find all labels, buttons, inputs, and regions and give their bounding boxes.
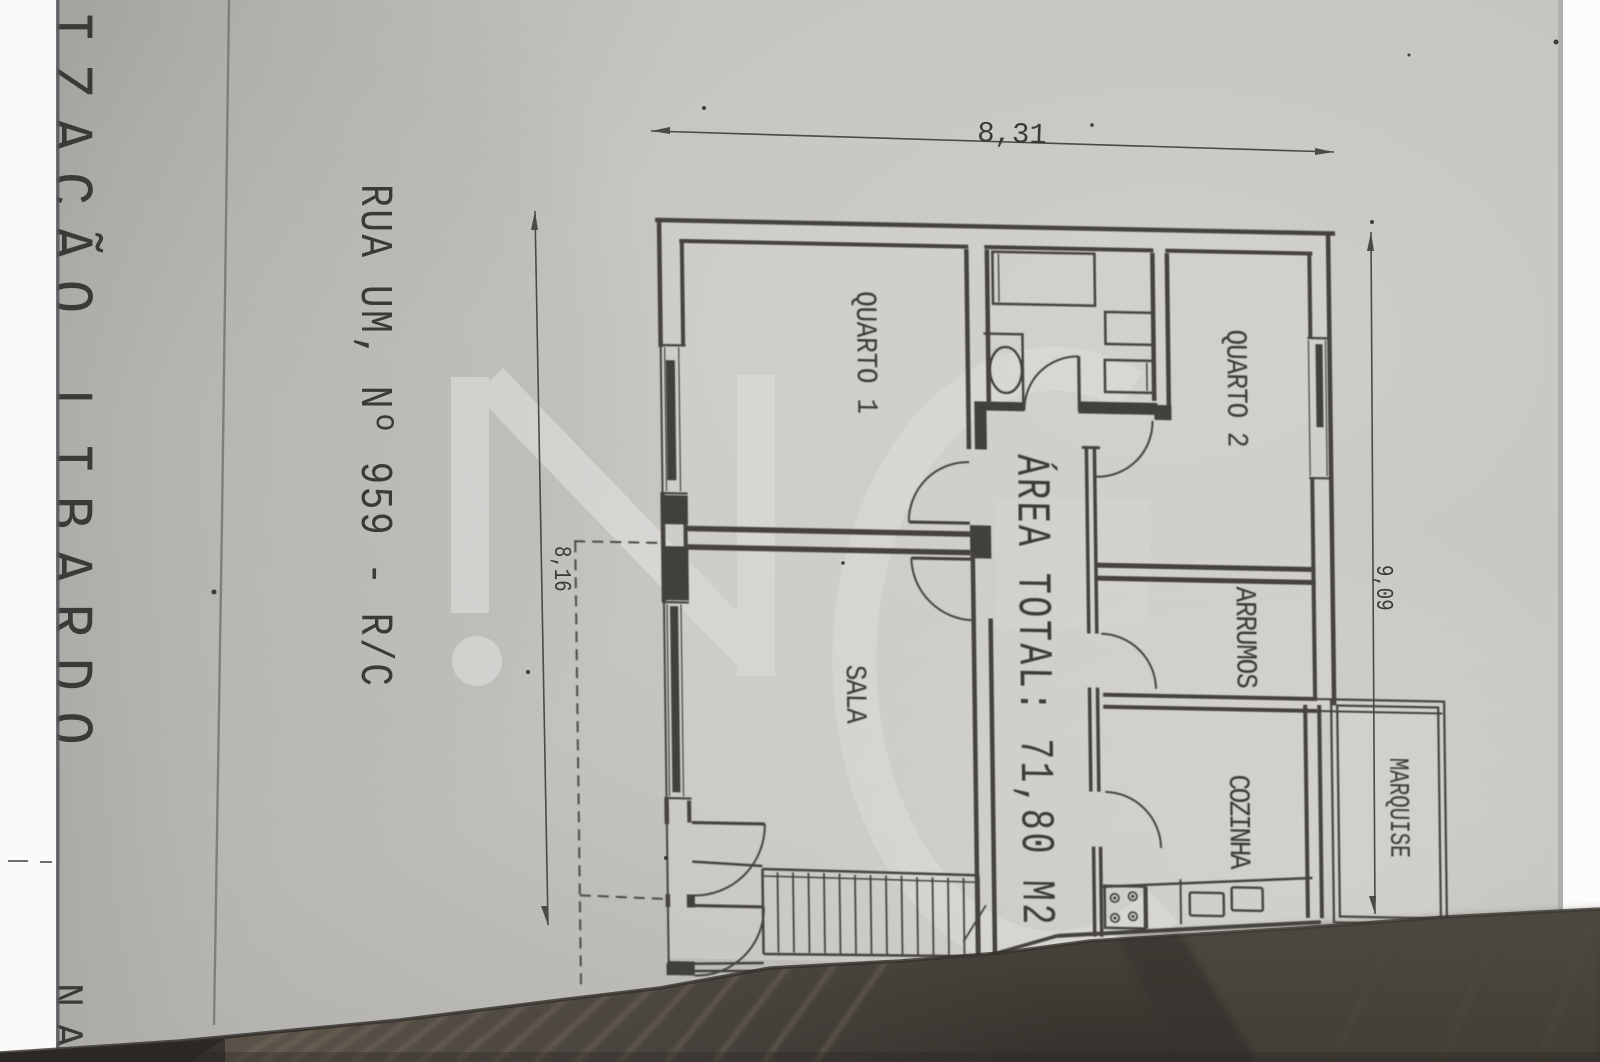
svg-text:8,31: 8,31 bbox=[977, 117, 1048, 152]
svg-text:ARRUMOS: ARRUMOS bbox=[1227, 586, 1261, 689]
svg-text:9,09: 9,09 bbox=[1369, 565, 1396, 611]
svg-text:MARQUISE: MARQUISE bbox=[1381, 757, 1413, 858]
svg-text:8,16: 8,16 bbox=[547, 546, 574, 592]
svg-text:QUARTO 1: QUARTO 1 bbox=[847, 291, 882, 415]
svg-text:SALA: SALA bbox=[837, 664, 871, 724]
svg-text:COZINHA: COZINHA bbox=[1220, 774, 1254, 870]
svg-text:QUARTO 2: QUARTO 2 bbox=[1218, 329, 1253, 448]
